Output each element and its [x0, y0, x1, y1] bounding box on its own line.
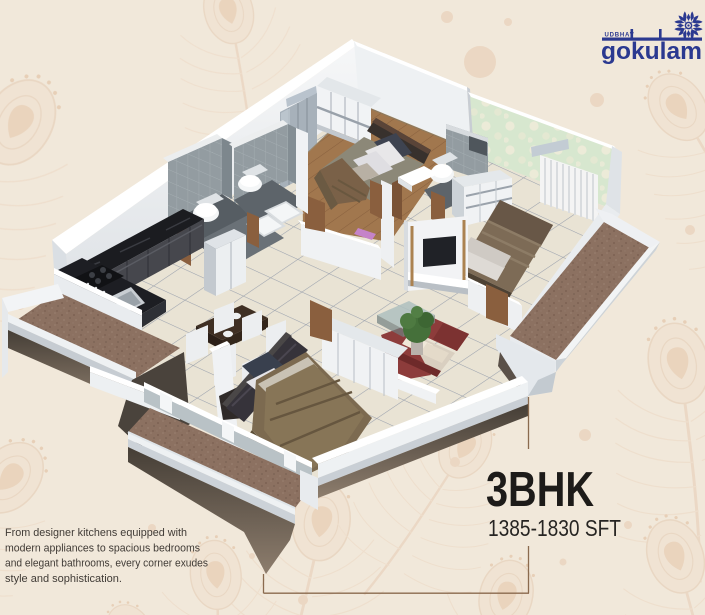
- svg-text:and elegant bathrooms, every c: and elegant bathrooms, every corner exud…: [5, 558, 208, 570]
- svg-text:From designer kitchens equippe: From designer kitchens equipped with: [5, 527, 187, 539]
- svg-text:gokulam: gokulam: [601, 38, 702, 65]
- svg-text:modern appliances to spacious: modern appliances to spacious bedrooms: [5, 542, 200, 554]
- svg-text:3BHK: 3BHK: [486, 463, 594, 517]
- svg-text:1385-1830 SFT: 1385-1830 SFT: [488, 515, 621, 541]
- svg-text:style and sophistication.: style and sophistication.: [5, 573, 122, 585]
